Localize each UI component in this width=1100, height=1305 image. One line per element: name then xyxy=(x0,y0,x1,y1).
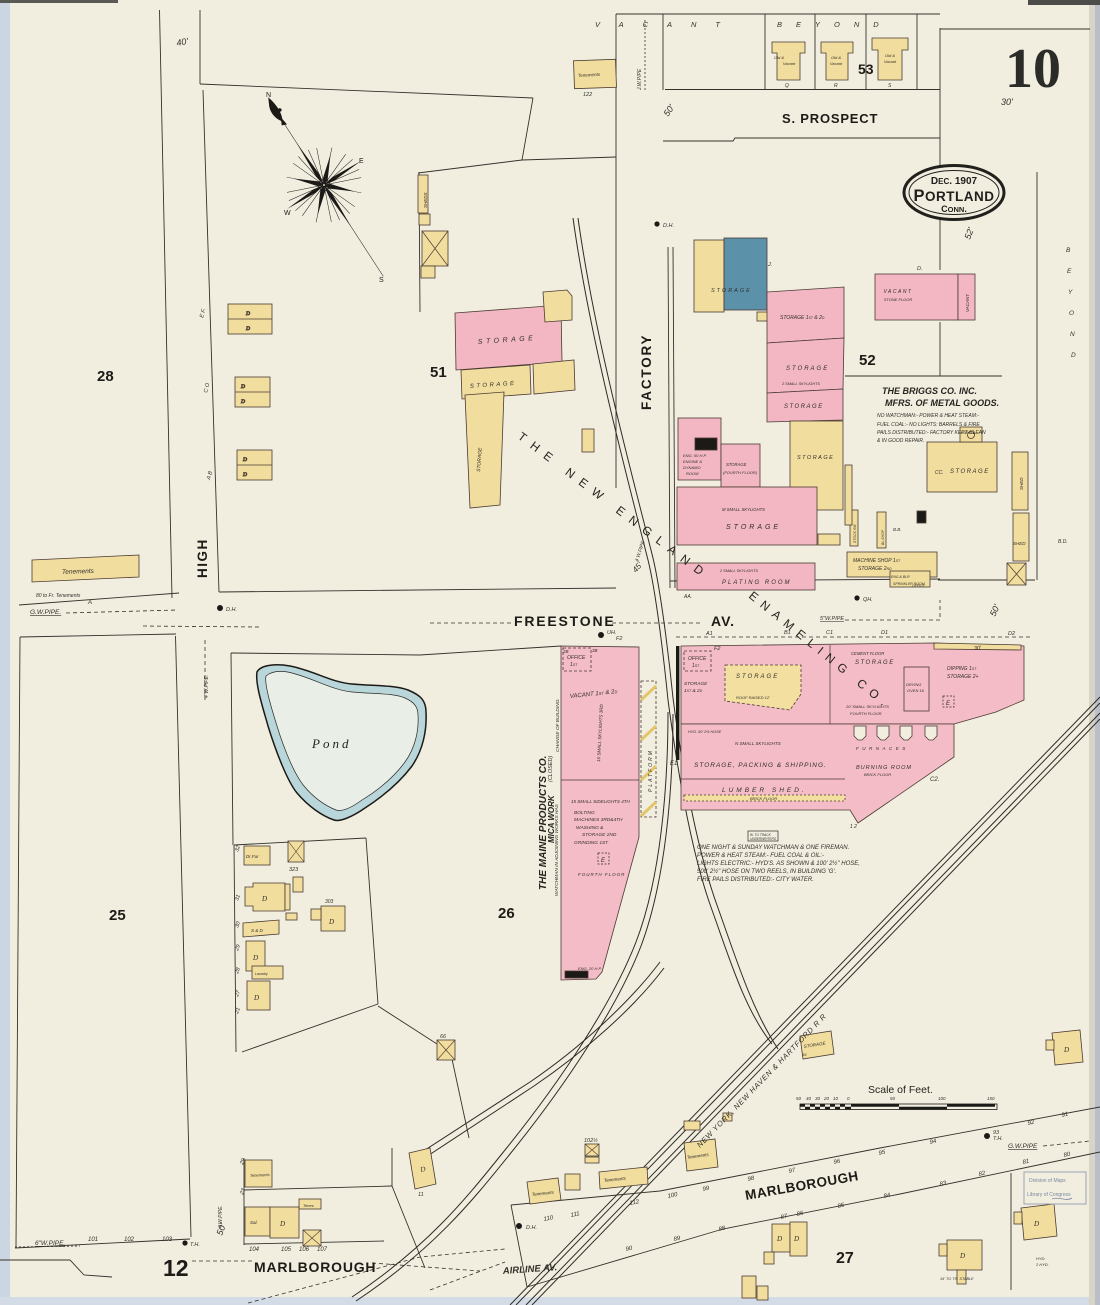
svg-text:80 to Fr. Tenements: 80 to Fr. Tenements xyxy=(36,593,81,599)
svg-text:28: 28 xyxy=(97,368,114,385)
svg-text:E: E xyxy=(1067,268,1072,275)
svg-text:T.H.: T.H. xyxy=(190,1242,200,1248)
svg-text:STORAGE: STORAGE xyxy=(736,674,779,680)
svg-text:D: D xyxy=(793,1235,799,1243)
svg-text:PLATING ROOM: PLATING ROOM xyxy=(722,580,792,586)
svg-text:STORAGE: STORAGE xyxy=(711,288,752,294)
svg-text:D: D xyxy=(253,994,259,1002)
svg-text:STORAGE: STORAGE xyxy=(786,366,829,372)
svg-text:POWER & HEAT STEAM:- FUEL: POWER & HEAT STEAM:- FUEL COAL & OIL:- xyxy=(697,853,824,859)
svg-text:LUMBER SHED.: LUMBER SHED. xyxy=(722,787,807,794)
svg-text:E: E xyxy=(359,158,364,165)
svg-text:Old &: Old & xyxy=(885,53,895,58)
svg-text:PORTLAND: PORTLAND xyxy=(913,187,994,205)
svg-text:66: 66 xyxy=(440,1034,447,1040)
svg-text:D: D xyxy=(252,954,258,962)
svg-text:D1: D1 xyxy=(881,630,888,636)
svg-text:16: 16 xyxy=(802,1052,807,1057)
svg-text:STORAGE: STORAGE xyxy=(726,524,781,531)
svg-text:105: 105 xyxy=(281,1247,292,1253)
svg-text:4"W.PIPE.: 4"W.PIPE. xyxy=(204,675,210,698)
svg-text:WATCHMAN IN ADJOINING WORKS HA: WATCHMAN IN ADJOINING WORKS HAS xyxy=(554,803,560,896)
svg-text:Y: Y xyxy=(1068,289,1073,296)
svg-text:BURNING ROOM: BURNING ROOM xyxy=(856,765,912,771)
svg-text:D: D xyxy=(959,1252,965,1260)
svg-text:FUEL COAL:- NO LIGHTS: BARRELS: FUEL COAL:- NO LIGHTS: BARRELS & FIRE xyxy=(877,422,980,428)
svg-text:BOLTING: BOLTING xyxy=(574,810,595,816)
svg-text:FREESTONE: FREESTONE xyxy=(514,613,616,629)
svg-text:UNDERWRITERS: UNDERWRITERS xyxy=(750,837,777,841)
svg-text:S. PROSPECT: S. PROSPECT xyxy=(782,111,878,126)
svg-text:50: 50 xyxy=(796,1096,802,1101)
svg-text:25: 25 xyxy=(109,907,126,924)
svg-text:16' TO TR. STABLE: 16' TO TR. STABLE xyxy=(940,1277,974,1281)
svg-text:SHED: SHED xyxy=(1019,477,1024,490)
svg-text:ENG. 20 H.P: ENG. 20 H.P xyxy=(578,966,601,971)
svg-text:W: W xyxy=(284,210,291,217)
svg-text:D: D xyxy=(245,311,250,317)
svg-text:103: 103 xyxy=(162,1237,173,1243)
svg-text:2 SMALL SKYLIGHTS: 2 SMALL SKYLIGHTS xyxy=(719,569,758,573)
svg-text:STOCK RM: STOCK RM xyxy=(853,525,857,543)
svg-text:D: D xyxy=(1071,352,1076,359)
svg-text:B.D.: B.D. xyxy=(1058,539,1068,545)
svg-text:A1: A1 xyxy=(705,631,713,637)
svg-text:D: D xyxy=(1063,1046,1069,1054)
svg-text:BL.SHOP: BL.SHOP xyxy=(881,529,885,545)
svg-text:VACANT: VACANT xyxy=(965,293,970,312)
svg-text:D: D xyxy=(279,1220,285,1228)
svg-text:CC.: CC. xyxy=(935,470,944,476)
svg-text:OVEN 16: OVEN 16 xyxy=(907,688,925,693)
svg-text:2 SMALL SKYLIGHTS: 2 SMALL SKYLIGHTS xyxy=(781,382,820,386)
svg-text:SHED: SHED xyxy=(1013,541,1026,546)
svg-text:GRINDING 1ST: GRINDING 1ST xyxy=(574,840,609,846)
svg-text:52: 52 xyxy=(859,352,876,369)
svg-text:27: 27 xyxy=(836,1250,854,1267)
svg-text:4 W.PIPE.: 4 W.PIPE. xyxy=(218,1205,224,1228)
svg-text:FIRE PAILS DISTRIBUTED:- CI: FIRE PAILS DISTRIBUTED:- CITY WATER. xyxy=(697,877,814,883)
svg-text:Vacant: Vacant xyxy=(783,61,796,66)
svg-text:(CLOSED): (CLOSED) xyxy=(548,756,554,782)
svg-text:M SMALL SKYLIGHTS: M SMALL SKYLIGHTS xyxy=(722,507,765,512)
svg-text:D: D xyxy=(240,384,245,390)
svg-text:20' SMALL SKYLIGHTS: 20' SMALL SKYLIGHTS xyxy=(845,704,889,709)
svg-text:A: A xyxy=(87,600,92,606)
svg-text:107: 107 xyxy=(317,1247,328,1253)
svg-text:CHANGE OF BUILDING.: CHANGE OF BUILDING. xyxy=(555,698,561,752)
svg-text:R: R xyxy=(834,83,838,89)
svg-text:Scale of Feet.: Scale of Feet. xyxy=(868,1084,933,1096)
svg-text:N: N xyxy=(266,92,271,99)
svg-text:STONE FLOOR: STONE FLOOR xyxy=(884,297,913,302)
svg-text:5"W.PIPE: 5"W.PIPE xyxy=(820,616,844,622)
svg-text:HYD. 50' 2½ HOSE: HYD. 50' 2½ HOSE xyxy=(688,730,722,734)
svg-text:6"W.PIPE.: 6"W.PIPE. xyxy=(35,1240,65,1247)
svg-text:101: 101 xyxy=(88,1237,98,1243)
svg-text:BRICK FLOOR: BRICK FLOOR xyxy=(864,772,891,777)
svg-text:FOURTH FLOOR: FOURTH FLOOR xyxy=(578,872,625,877)
svg-text:N SMALL SKYLIGHTS: N SMALL SKYLIGHTS xyxy=(735,741,781,746)
svg-text:STORAGE: STORAGE xyxy=(726,462,747,467)
svg-text:104: 104 xyxy=(249,1247,260,1253)
svg-text:ROOM: ROOM xyxy=(686,471,699,476)
svg-text:HYD.: HYD. xyxy=(1036,1256,1046,1261)
svg-text:D: D xyxy=(1033,1220,1039,1228)
svg-text:D.H.: D.H. xyxy=(663,223,674,229)
svg-text:C2.: C2. xyxy=(930,777,939,783)
svg-text:NO WATCHMAN:- POWER & HEAT STE: NO WATCHMAN:- POWER & HEAT STEAM:- xyxy=(877,413,979,419)
svg-text:2 HYD.: 2 HYD. xyxy=(1035,1262,1049,1267)
svg-text:STORAGE: STORAGE xyxy=(950,469,990,475)
svg-text:N: N xyxy=(1070,331,1075,338)
svg-text:AA.: AA. xyxy=(683,594,692,600)
svg-text:53: 53 xyxy=(858,61,874,77)
svg-text:AV.: AV. xyxy=(711,613,735,629)
svg-text:CEMENT FLOOR: CEMENT FLOOR xyxy=(851,651,884,656)
svg-text:30': 30' xyxy=(1001,97,1013,107)
svg-text:12: 12 xyxy=(163,1255,189,1281)
svg-text:MFRS. OF METAL GOODS.: MFRS. OF METAL GOODS. xyxy=(885,398,999,408)
svg-text:F2: F2 xyxy=(616,636,622,642)
svg-text:SHEDS: SHEDS xyxy=(423,192,428,208)
svg-text:S & D: S & D xyxy=(251,928,264,933)
svg-text:& IN GOOD REPAIR.: & IN GOOD REPAIR. xyxy=(877,438,924,444)
svg-text:26: 26 xyxy=(498,905,515,922)
svg-text:MACHINE SHOP 1ST: MACHINE SHOP 1ST xyxy=(853,558,901,564)
svg-text:ENGINE &: ENGINE & xyxy=(683,459,702,464)
svg-text:11: 11 xyxy=(418,1192,424,1198)
svg-text:STORAGE 2ND: STORAGE 2ND xyxy=(582,832,617,838)
svg-text:D: D xyxy=(242,457,247,463)
svg-text:VACANT: VACANT xyxy=(595,20,739,29)
svg-text:303: 303 xyxy=(325,899,334,905)
svg-text:Sal.: Sal. xyxy=(250,1220,258,1225)
svg-text:OFFICE: OFFICE xyxy=(912,584,925,588)
svg-text:D.H.: D.H. xyxy=(526,1225,537,1231)
svg-text:B: B xyxy=(1066,247,1071,254)
svg-text:S: S xyxy=(379,277,384,284)
svg-text:MACHINES 3RD&4TH: MACHINES 3RD&4TH xyxy=(574,817,623,823)
svg-text:Q: Q xyxy=(785,83,789,89)
svg-text:150: 150 xyxy=(987,1096,995,1101)
svg-text:51: 51 xyxy=(430,364,447,381)
svg-text:OFFICE: OFFICE xyxy=(567,655,586,661)
svg-text:BRICK FLOOR: BRICK FLOOR xyxy=(750,796,777,801)
svg-text:E1: E1 xyxy=(670,761,677,767)
svg-text:STORAGE: STORAGE xyxy=(797,455,834,461)
svg-text:STORAGE: STORAGE xyxy=(784,404,824,410)
svg-text:STORAGE: STORAGE xyxy=(684,681,708,687)
svg-text:T.H.: T.H. xyxy=(993,1136,1003,1142)
svg-text:Vacant: Vacant xyxy=(884,59,897,64)
svg-text:G.W.PIPE.: G.W.PIPE. xyxy=(30,609,61,616)
svg-text:STORAGE: STORAGE xyxy=(855,660,895,666)
svg-text:30: 30 xyxy=(815,1096,821,1101)
svg-text:20: 20 xyxy=(823,1096,830,1101)
svg-text:40': 40' xyxy=(176,36,190,48)
svg-text:BEYOND: BEYOND xyxy=(777,20,893,29)
svg-text:THE BRIGGS CO. INC.: THE BRIGGS CO. INC. xyxy=(882,386,977,396)
svg-text:ENG. 50 H.P.: ENG. 50 H.P. xyxy=(683,453,707,458)
svg-text:D: D xyxy=(261,895,267,903)
svg-text:ENG & BLR: ENG & BLR xyxy=(891,575,910,579)
svg-text:J.W.PIPE: J.W.PIPE xyxy=(637,68,643,91)
svg-text:122: 122 xyxy=(583,92,592,98)
svg-text:FOURTH FLOOR: FOURTH FLOOR xyxy=(850,711,882,716)
svg-text:Tenements: Tenements xyxy=(62,568,95,576)
svg-text:QH.: QH. xyxy=(863,597,873,603)
svg-text:PLATFORM: PLATFORM xyxy=(648,749,654,792)
svg-text:Tenes: Tenes xyxy=(303,1203,314,1208)
svg-text:Division of Maps: Division of Maps xyxy=(1029,1178,1066,1184)
svg-text:(FOURTH FLOOR): (FOURTH FLOOR) xyxy=(723,470,758,475)
svg-text:Dr.Fur: Dr.Fur xyxy=(246,854,259,859)
svg-text:3B: 3B xyxy=(592,648,598,653)
svg-text:CONN.: CONN. xyxy=(941,204,967,214)
svg-text:10: 10 xyxy=(833,1096,839,1101)
svg-text:10: 10 xyxy=(1005,38,1061,100)
svg-text:500' 2½" HOSE ON TWO REELS,: 500' 2½" HOSE ON TWO REELS, IN BUILDING … xyxy=(697,868,836,875)
svg-text:LIGHTS ELECTRIC:- HYD'S. AS: LIGHTS ELECTRIC:- HYD'S. AS SHOWN & 100'… xyxy=(697,860,860,867)
svg-text:D: D xyxy=(242,472,247,478)
svg-text:DRYING: DRYING xyxy=(906,682,921,687)
svg-text:40: 40 xyxy=(806,1096,812,1101)
svg-text:B.B.: B.B. xyxy=(893,527,902,532)
svg-text:Old &: Old & xyxy=(831,55,841,60)
svg-text:D.H.: D.H. xyxy=(226,607,237,613)
svg-text:F2: F2 xyxy=(714,646,720,652)
svg-text:Laundry: Laundry xyxy=(255,972,268,976)
svg-text:102: 102 xyxy=(124,1237,135,1243)
svg-text:DYNAMO: DYNAMO xyxy=(683,465,701,470)
svg-text:D: D xyxy=(776,1235,782,1243)
svg-text:OFFICE: OFFICE xyxy=(688,656,707,662)
svg-text:DEC. 1907: DEC. 1907 xyxy=(931,176,978,187)
svg-text:PAILS DISTRIBUTED:- FACTORY KE: PAILS DISTRIBUTED:- FACTORY KEPT CLEAN xyxy=(877,430,986,436)
svg-text:C1: C1 xyxy=(826,630,833,636)
svg-text:15 SMALL SIDELIGHTS 4TH: 15 SMALL SIDELIGHTS 4TH xyxy=(571,799,630,804)
svg-text:1 2: 1 2 xyxy=(850,824,857,830)
svg-text:D: D xyxy=(245,326,250,332)
svg-text:50: 50 xyxy=(890,1096,896,1101)
svg-text:G.W.PIPE: G.W.PIPE xyxy=(1008,1143,1038,1150)
svg-text:STORAGE 1ST & 2D: STORAGE 1ST & 2D xyxy=(780,315,825,321)
svg-text:D: D xyxy=(328,918,334,926)
svg-text:J.: J. xyxy=(767,262,772,268)
svg-text:STORAGE 2+: STORAGE 2+ xyxy=(947,674,979,680)
svg-text:D.: D. xyxy=(917,266,923,272)
svg-text:O: O xyxy=(1069,310,1074,317)
svg-text:VACANT: VACANT xyxy=(883,289,912,295)
svg-text:106: 106 xyxy=(299,1247,310,1253)
svg-text:FURNACES: FURNACES xyxy=(856,746,909,751)
svg-text:2B: 2B xyxy=(562,649,569,654)
svg-text:B1: B1 xyxy=(784,630,791,636)
svg-text:323: 323 xyxy=(289,867,299,873)
svg-text:D2: D2 xyxy=(1008,631,1015,637)
svg-text:ROOF RAISED 12': ROOF RAISED 12' xyxy=(736,695,770,700)
svg-text:100: 100 xyxy=(938,1096,946,1101)
svg-text:Library of Congress: Library of Congress xyxy=(1027,1192,1071,1198)
svg-text:Old &: Old & xyxy=(774,55,784,60)
svg-text:MARLBOROUGH: MARLBOROUGH xyxy=(254,1259,376,1275)
svg-text:Vacant: Vacant xyxy=(830,61,843,66)
svg-text:FACTORY: FACTORY xyxy=(639,334,654,410)
svg-text:D: D xyxy=(240,399,245,405)
svg-text:ONE NIGHT & SUNDAY WATCHMA: ONE NIGHT & SUNDAY WATCHMAN & ONE FIREMA… xyxy=(697,845,849,851)
svg-text:WASHING &: WASHING & xyxy=(576,825,603,831)
svg-text:HIGH: HIGH xyxy=(195,538,210,578)
svg-text:STORAGE, PACKING & SHIPPING: STORAGE, PACKING & SHIPPING. xyxy=(694,762,827,769)
svg-text:Tenements: Tenements xyxy=(250,1172,270,1178)
svg-text:102½: 102½ xyxy=(584,1137,598,1144)
svg-text:Pond: Pond xyxy=(311,736,351,751)
